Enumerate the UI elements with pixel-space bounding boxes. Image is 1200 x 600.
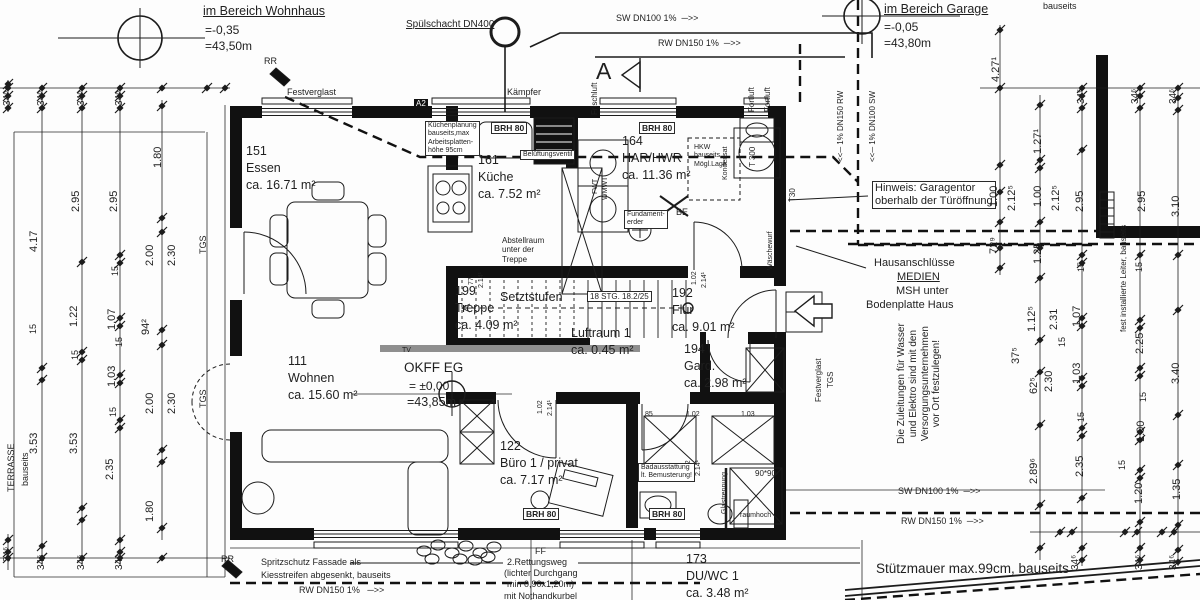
plan-text: Wäschewurf bbox=[767, 231, 775, 270]
plan-text: 2.30 bbox=[166, 393, 179, 414]
plan-text: (lichter Durchgang bbox=[504, 568, 578, 579]
plan-text: A bbox=[596, 58, 611, 85]
plan-text: Glastrennung bbox=[721, 472, 729, 514]
plan-text: 34⁶ bbox=[76, 91, 88, 106]
plan-text: Fundament- erder bbox=[624, 210, 668, 229]
plan-text: BRH 80 bbox=[649, 508, 685, 520]
plan-text: ca. 0.45 m² bbox=[571, 343, 634, 358]
plan-text: 1.12⁵ bbox=[1026, 306, 1039, 332]
plan-text: 18 STG. 18.2/25 bbox=[587, 291, 652, 302]
plan-text: TGS bbox=[826, 372, 835, 388]
room-label: 122 Büro 1 / privat ca. 7.17 m² bbox=[500, 438, 578, 489]
plan-text: BE bbox=[676, 207, 688, 218]
plan-text: 1.07 bbox=[1071, 306, 1084, 327]
plan-text: Kämpfer bbox=[507, 87, 541, 98]
room-label: 164 HAR/HWR ca. 11.36 m² bbox=[622, 133, 691, 184]
plan-text: Abstellraum unter der Treppe bbox=[502, 236, 544, 264]
plan-text: 62⁵ bbox=[1028, 377, 1041, 394]
plan-labels: im Bereich Wohnhaus=-0,35=43,50mSpülscha… bbox=[0, 0, 1200, 600]
plan-text: 15 bbox=[1076, 262, 1087, 272]
plan-text: 34⁶ bbox=[76, 555, 88, 570]
plan-text: Fortluft bbox=[747, 87, 756, 112]
plan-text: 1.22 bbox=[68, 306, 81, 327]
plan-text: fest installierte Leiter, bauseits bbox=[1119, 225, 1128, 332]
plan-text: 2.00 bbox=[144, 245, 157, 266]
room-label: 111 Wohnen ca. 15.60 m² bbox=[288, 353, 357, 404]
plan-text: Hinweis: Garagentor oberhalb der Türöffn… bbox=[872, 181, 996, 209]
plan-text: RW DN150 1% ─>> bbox=[901, 516, 984, 527]
plan-text: OKFF EG bbox=[404, 360, 463, 376]
plan-text: 1.25 bbox=[1032, 243, 1045, 264]
plan-text: Kiesstreifen abgesenkt, bauseits bbox=[261, 570, 391, 581]
plan-text: Spülschacht DN400 bbox=[406, 19, 494, 31]
plan-text: SW DN100 1% ─>> bbox=[898, 486, 980, 497]
plan-text: 34⁶ bbox=[1134, 555, 1146, 570]
plan-text: Küchenplanung bauseits,max Arbeitsplatte… bbox=[425, 121, 480, 156]
plan-text: 3.53 bbox=[68, 433, 81, 454]
plan-text: 1.80 bbox=[144, 501, 157, 522]
plan-text: 2.35 bbox=[104, 459, 117, 480]
plan-text: Spritzschutz Fassade als bbox=[261, 557, 361, 568]
plan-text: MEDIEN bbox=[897, 271, 940, 284]
plan-text: T30 bbox=[788, 188, 797, 202]
plan-text: =43,50m bbox=[205, 39, 252, 53]
plan-text: <<─ 1% DN150 RW bbox=[836, 91, 845, 162]
plan-text: 1.80 bbox=[152, 147, 165, 168]
plan-text: =-0,05 bbox=[884, 20, 918, 34]
plan-text: RR bbox=[264, 56, 277, 67]
plan-text: FWT bbox=[592, 179, 600, 194]
room-label: 173 DU/WC 1 ca. 3.48 m² bbox=[686, 551, 749, 600]
plan-text: TERRASSE bbox=[6, 443, 17, 492]
plan-text: TGS bbox=[198, 235, 209, 254]
plan-text: mit Nothandkurbel bbox=[504, 591, 577, 600]
plan-text: 34⁶ bbox=[1076, 89, 1088, 104]
plan-text: bauseits bbox=[20, 452, 31, 486]
plan-text: 1.07 bbox=[106, 309, 119, 330]
room-label: 192 Flur ca. 9.01 m² bbox=[672, 285, 735, 336]
plan-text: Badausstattung lt. Bemusterung! bbox=[638, 463, 695, 482]
plan-text: 1.02 bbox=[686, 411, 700, 419]
room-label: 199 Treppe ca. 4.09 m² bbox=[455, 283, 518, 334]
plan-text: 2.30 bbox=[166, 245, 179, 266]
plan-text: RW DN150 1% ─>> bbox=[658, 38, 741, 49]
plan-text: 4.17 bbox=[28, 231, 41, 252]
plan-text: 15 bbox=[114, 337, 125, 347]
plan-text: 1.35 bbox=[1171, 479, 1184, 500]
plan-text: 1.03 bbox=[106, 366, 119, 387]
plan-text: 15 bbox=[1057, 337, 1068, 347]
plan-text: 2.95 bbox=[1074, 191, 1087, 212]
plan-text: 34⁶ bbox=[1168, 555, 1180, 570]
plan-text: RR bbox=[221, 554, 234, 565]
plan-text: 1.03 bbox=[1071, 363, 1084, 384]
plan-text: bauseits bbox=[1043, 1, 1077, 12]
floor-plan-sheet: im Bereich Wohnhaus=-0,35=43,50mSpülscha… bbox=[0, 0, 1200, 600]
plan-text: 15 bbox=[70, 350, 81, 360]
plan-text: 34⁶ bbox=[36, 555, 48, 570]
plan-text: 1.00 bbox=[988, 186, 1001, 207]
plan-text: Die Zuleitungen für Wasser und Elektro s… bbox=[896, 323, 943, 444]
plan-text: 34⁶ bbox=[114, 91, 126, 106]
plan-text: im Bereich Wohnhaus bbox=[203, 4, 325, 19]
plan-text: 15 bbox=[1076, 412, 1087, 422]
plan-text: 37⁵ bbox=[1010, 347, 1023, 364]
plan-text: SW DN100 1% ─>> bbox=[616, 13, 698, 24]
plan-text: 15 bbox=[110, 266, 121, 276]
plan-text: 1.03 bbox=[741, 411, 755, 419]
plan-text: RW DN150 1% ─>> bbox=[299, 585, 384, 596]
plan-text: Bodenplatte Haus bbox=[866, 299, 953, 312]
plan-text: TGS bbox=[198, 389, 209, 408]
plan-text: =43,80m bbox=[884, 36, 931, 50]
plan-text: Stützmauer max.99cm, bauseits bbox=[876, 561, 1069, 577]
plan-text: Luftraum 1 bbox=[571, 326, 631, 341]
plan-text: 2.31 bbox=[1048, 309, 1061, 330]
plan-text: 34⁶ bbox=[1070, 555, 1082, 570]
plan-text: 34⁶ bbox=[1168, 89, 1180, 104]
plan-text: 2.14¹ bbox=[547, 400, 555, 416]
plan-text: im Bereich Garage bbox=[884, 2, 988, 17]
plan-text: 1.02 bbox=[537, 400, 545, 414]
plan-text: 94² bbox=[140, 319, 153, 335]
plan-text: 2.95 bbox=[1136, 191, 1149, 212]
plan-text: =-0,35 bbox=[205, 23, 239, 37]
plan-text: min 0,90x1,20m) bbox=[507, 579, 574, 590]
plan-text: 15 bbox=[1134, 262, 1145, 272]
plan-text: 85 bbox=[645, 411, 653, 419]
plan-text: 1.00 bbox=[1032, 186, 1045, 207]
plan-text: 3.53 bbox=[28, 433, 41, 454]
plan-text: WMWT bbox=[602, 177, 610, 200]
plan-text: 3.10 bbox=[1170, 196, 1183, 217]
plan-text: raumhoch bbox=[740, 512, 771, 520]
plan-text: 1.20 bbox=[1133, 483, 1146, 504]
plan-text: BRH 80 bbox=[491, 122, 527, 134]
plan-text: Fortluft bbox=[763, 87, 772, 112]
plan-text: 1.00 bbox=[1135, 421, 1148, 442]
plan-text: 90*90 bbox=[755, 469, 776, 478]
plan-text: 4.27¹ bbox=[990, 57, 1003, 82]
plan-text: 2.00 bbox=[144, 393, 157, 414]
plan-text: FF bbox=[535, 546, 546, 557]
plan-text: 15 bbox=[28, 324, 39, 334]
plan-text: 34⁶ bbox=[2, 547, 14, 562]
room-label: 151 Essen ca. 16.71 m² bbox=[246, 143, 315, 194]
room-label: 161 Küche ca. 7.52 m² bbox=[478, 152, 541, 203]
plan-text: 15 bbox=[1138, 392, 1149, 402]
plan-text: 15 bbox=[108, 407, 119, 417]
plan-text: MSH unter bbox=[896, 285, 949, 298]
plan-text: Festverglast bbox=[814, 358, 823, 402]
plan-text: 15 bbox=[1117, 460, 1128, 470]
plan-text: 34⁶ bbox=[114, 555, 126, 570]
plan-text: 3.40 bbox=[1170, 363, 1183, 384]
plan-text: BRH 80 bbox=[523, 508, 559, 520]
plan-text: Festverglast bbox=[287, 87, 336, 98]
plan-text: 1.02 bbox=[691, 271, 699, 285]
plan-text: <<─ 1% DN100 SW bbox=[868, 91, 877, 162]
plan-text: 2.Rettungsweg bbox=[507, 557, 567, 568]
plan-text: TV bbox=[402, 347, 411, 355]
plan-text: 1.27¹ bbox=[1032, 129, 1045, 154]
room-label: 194 Gard. ca. 2.98 m² bbox=[684, 341, 747, 392]
plan-text: 34⁶ bbox=[1130, 89, 1142, 104]
plan-text: 2.14¹ bbox=[695, 460, 703, 476]
plan-text: Kondensat bbox=[722, 147, 730, 180]
plan-text: 72⁹ bbox=[988, 237, 1001, 254]
plan-text: T 300 bbox=[748, 147, 757, 167]
plan-text: A2 bbox=[414, 99, 428, 108]
plan-text: 2.95 bbox=[70, 191, 83, 212]
plan-text: Hausanschlüsse bbox=[874, 257, 955, 270]
plan-text: =43,85m bbox=[407, 395, 456, 410]
plan-text: = ±0,00 bbox=[409, 379, 449, 393]
plan-text: 34⁶ bbox=[2, 91, 14, 106]
plan-text: 2.95 bbox=[108, 191, 121, 212]
plan-text: Frischluft bbox=[590, 83, 599, 115]
plan-text: 2.25 bbox=[1134, 333, 1147, 354]
plan-text: 2.89⁶ bbox=[1028, 458, 1041, 484]
plan-text: 2.12⁵ bbox=[1006, 185, 1019, 211]
plan-text: 34⁶ bbox=[36, 91, 48, 106]
plan-text: 2.30 bbox=[1043, 371, 1056, 392]
plan-text: 2.35 bbox=[1074, 456, 1087, 477]
plan-text: 2.12⁵ bbox=[1050, 185, 1063, 211]
